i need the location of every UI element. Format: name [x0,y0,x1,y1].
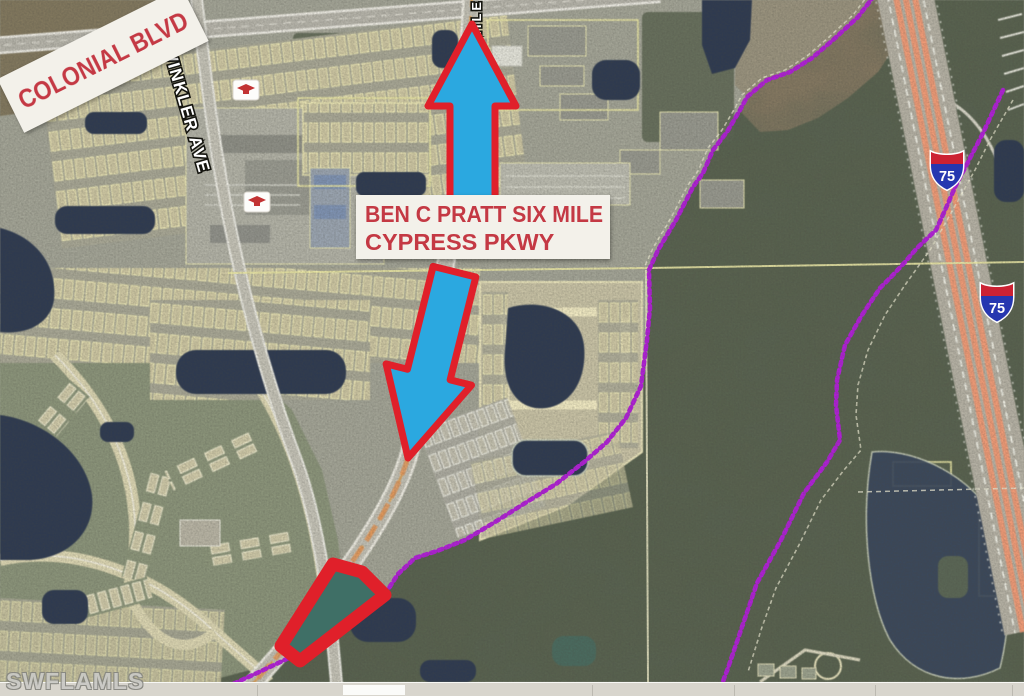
scrollbar-thumb[interactable] [343,685,405,695]
statusbar-divider [734,685,735,696]
statusbar-divider [592,685,593,696]
map-canvas[interactable]: WINKLER AVE MILE BEN C PRATT SIX MILE CY… [0,0,1024,682]
i75-shield-label: 75 [939,169,955,185]
statusbar-divider [1012,685,1013,696]
parkway-label-line1: BEN C PRATT SIX MILE [365,201,603,227]
i75-shield-label: 75 [989,301,1005,317]
statusbar-divider [257,685,258,696]
map-window: WINKLER AVE MILE BEN C PRATT SIX MILE CY… [0,0,1024,696]
horizontal-scrollbar[interactable] [0,682,1024,696]
mls-watermark: SWFLAMLS [6,668,144,695]
school-icon [233,80,259,100]
school-icon [244,192,270,212]
statusbar-divider [875,685,876,696]
parkway-label-box: BEN C PRATT SIX MILE CYPRESS PKWY [356,195,610,259]
parkway-label-line2: CYPRESS PKWY [365,229,555,255]
